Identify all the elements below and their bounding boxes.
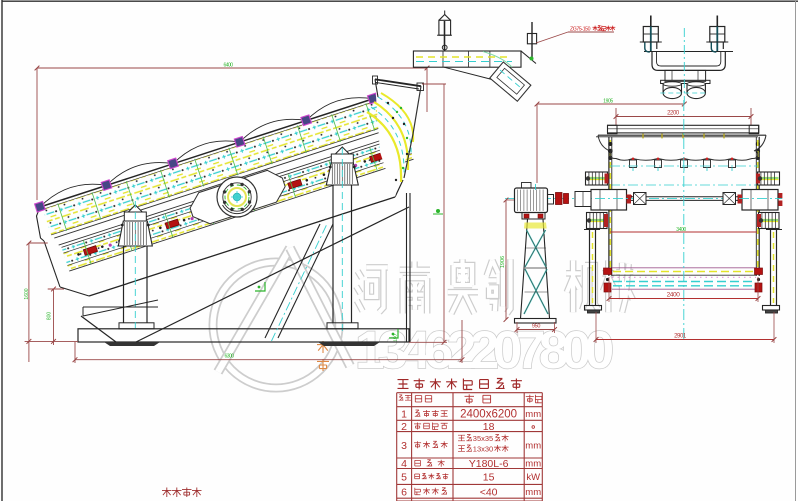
svg-text:35x35: 35x35 (473, 434, 493, 443)
svg-text:mm: mm (525, 487, 541, 498)
svg-text:5: 5 (401, 471, 407, 483)
svg-text:mm: mm (525, 440, 541, 451)
svg-text:13462207800: 13462207800 (355, 321, 613, 380)
svg-text:mm: mm (525, 459, 541, 470)
svg-text:6400: 6400 (223, 63, 233, 69)
svg-text:4: 4 (401, 458, 407, 470)
svg-text:2200: 2200 (667, 111, 680, 117)
svg-text:13x30: 13x30 (473, 444, 493, 453)
svg-text:2400x6200: 2400x6200 (460, 409, 517, 421)
svg-text:950: 950 (532, 324, 541, 330)
svg-text:2901: 2901 (674, 334, 687, 340)
svg-text:2400: 2400 (667, 292, 681, 299)
svg-text:1: 1 (401, 409, 407, 421)
svg-text:ZG75-150: ZG75-150 (570, 27, 591, 33)
svg-text:<40: <40 (480, 486, 498, 498)
svg-text:15: 15 (483, 471, 495, 483)
svg-text:mm: mm (525, 409, 541, 420)
svg-text:1600: 1600 (24, 288, 30, 299)
svg-text:3400: 3400 (676, 227, 686, 233)
svg-text:150: 150 (393, 334, 398, 342)
svg-text:Y180L-6: Y180L-6 (469, 458, 509, 470)
svg-text:1905: 1905 (603, 99, 613, 105)
svg-text:3: 3 (401, 440, 407, 452)
svg-text:6: 6 (401, 486, 407, 498)
svg-text:2: 2 (401, 421, 407, 433)
svg-text:6300: 6300 (224, 354, 234, 360)
svg-text:kW: kW (526, 472, 540, 483)
svg-text:1906: 1906 (500, 256, 506, 268)
svg-text:800: 800 (47, 312, 53, 321)
svg-text:18: 18 (483, 421, 495, 433)
